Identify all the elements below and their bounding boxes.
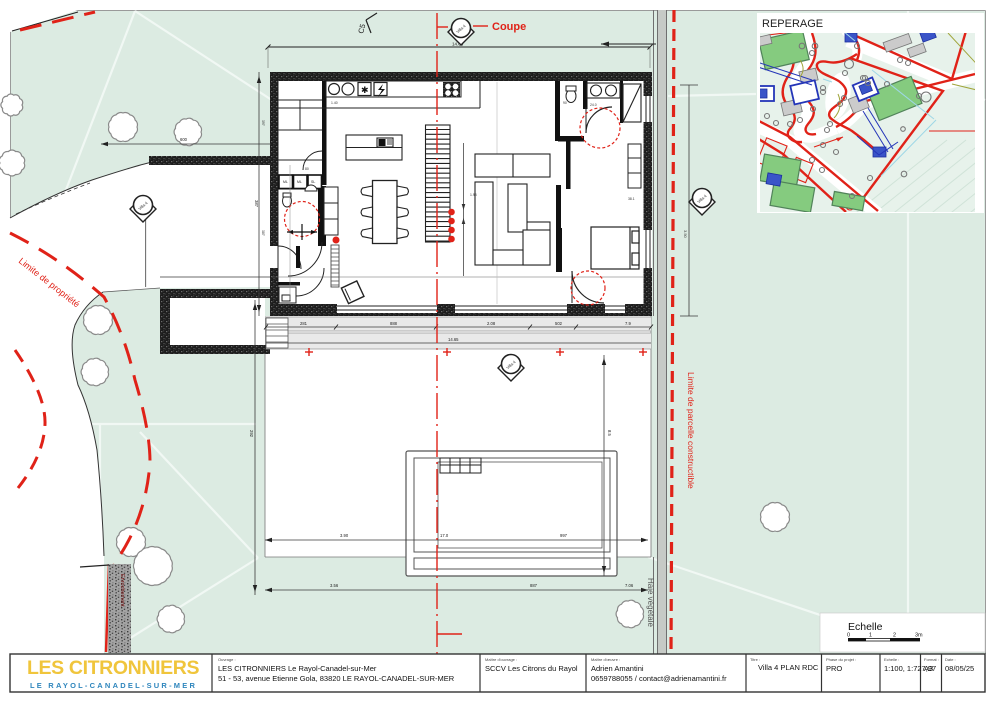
- svg-text:600: 600: [180, 137, 188, 142]
- svg-text:3.90: 3.90: [340, 533, 349, 538]
- svg-text:0659788055 / contact@adrienama: 0659788055 / contact@adrienamantini.fr: [591, 674, 727, 683]
- svg-text:7.06: 7.06: [625, 583, 634, 588]
- svg-text:Enrochement: Enrochement: [119, 574, 125, 607]
- svg-text:24.0: 24.0: [590, 103, 597, 107]
- svg-text:08/05/25: 08/05/25: [945, 664, 974, 673]
- svg-text:Maître d'œuvre :: Maître d'œuvre :: [591, 657, 620, 662]
- svg-text:Ouvrage :: Ouvrage :: [218, 657, 236, 662]
- svg-text:SCCV Les Citrons du Rayol: SCCV Les Citrons du Rayol: [485, 664, 578, 673]
- svg-text:ML: ML: [283, 180, 288, 184]
- svg-text:888: 888: [390, 321, 398, 326]
- svg-text:Villa 4 PLAN RDC: Villa 4 PLAN RDC: [758, 663, 819, 672]
- svg-text:887: 887: [530, 583, 538, 588]
- svg-text:2: 2: [893, 633, 896, 639]
- svg-text:292: 292: [249, 430, 254, 438]
- svg-text:7.9: 7.9: [625, 321, 631, 326]
- svg-text:Date :: Date :: [945, 657, 956, 662]
- svg-text:1: 1: [869, 633, 872, 639]
- svg-text:51 - 53, avenue Etienne Gola,: 51 - 53, avenue Etienne Gola, 83820 LE R…: [218, 674, 455, 683]
- svg-text:LES CITRONNIERS: LES CITRONNIERS: [27, 657, 200, 679]
- svg-text:PRO: PRO: [826, 664, 842, 673]
- svg-text:Limite de parcelle constructib: Limite de parcelle constructible: [686, 372, 696, 489]
- svg-text:997: 997: [560, 533, 568, 538]
- svg-text:3.56: 3.56: [330, 583, 339, 588]
- svg-text:Adrien Amantini: Adrien Amantini: [591, 664, 644, 673]
- svg-text:✱: ✱: [361, 85, 369, 95]
- svg-text:Format :: Format :: [924, 657, 939, 662]
- svg-text:2.08: 2.08: [487, 321, 496, 326]
- svg-text:1.40: 1.40: [331, 101, 338, 105]
- svg-text:1.93: 1.93: [470, 193, 477, 197]
- svg-text:SL: SL: [311, 180, 315, 184]
- svg-text:17.0: 17.0: [440, 533, 449, 538]
- svg-text:397: 397: [261, 120, 265, 126]
- svg-text:A3: A3: [924, 664, 933, 673]
- svg-text:80: 80: [305, 167, 309, 171]
- svg-text:Titre :: Titre :: [750, 657, 760, 662]
- svg-text:Haie végétale: Haie végétale: [646, 578, 655, 627]
- svg-text:Maître d'ouvrage :: Maître d'ouvrage :: [485, 657, 517, 662]
- svg-text:Coupe: Coupe: [492, 21, 526, 33]
- svg-text:387: 387: [254, 200, 259, 208]
- svg-text:387: 387: [261, 230, 265, 236]
- svg-text:3.50: 3.50: [683, 230, 688, 239]
- svg-text:14.65: 14.65: [448, 337, 459, 342]
- svg-text:502: 502: [555, 321, 563, 326]
- svg-text:8.5: 8.5: [607, 430, 612, 436]
- svg-text:ML: ML: [297, 180, 302, 184]
- svg-text:90: 90: [563, 101, 567, 105]
- svg-text:Echelle: Echelle: [848, 621, 883, 633]
- svg-text:Echelle :: Echelle :: [884, 657, 899, 662]
- svg-text:3m: 3m: [915, 633, 923, 639]
- svg-text:38.1: 38.1: [628, 197, 635, 201]
- svg-text:0: 0: [847, 633, 850, 639]
- svg-text:LES CITRONNIERS Le Rayol-Canad: LES CITRONNIERS Le Rayol-Canadel-sur-Mer: [218, 664, 377, 673]
- svg-text:REPERAGE: REPERAGE: [762, 18, 823, 30]
- svg-text:281: 281: [300, 321, 308, 326]
- svg-text:Phase du projet :: Phase du projet :: [826, 657, 856, 662]
